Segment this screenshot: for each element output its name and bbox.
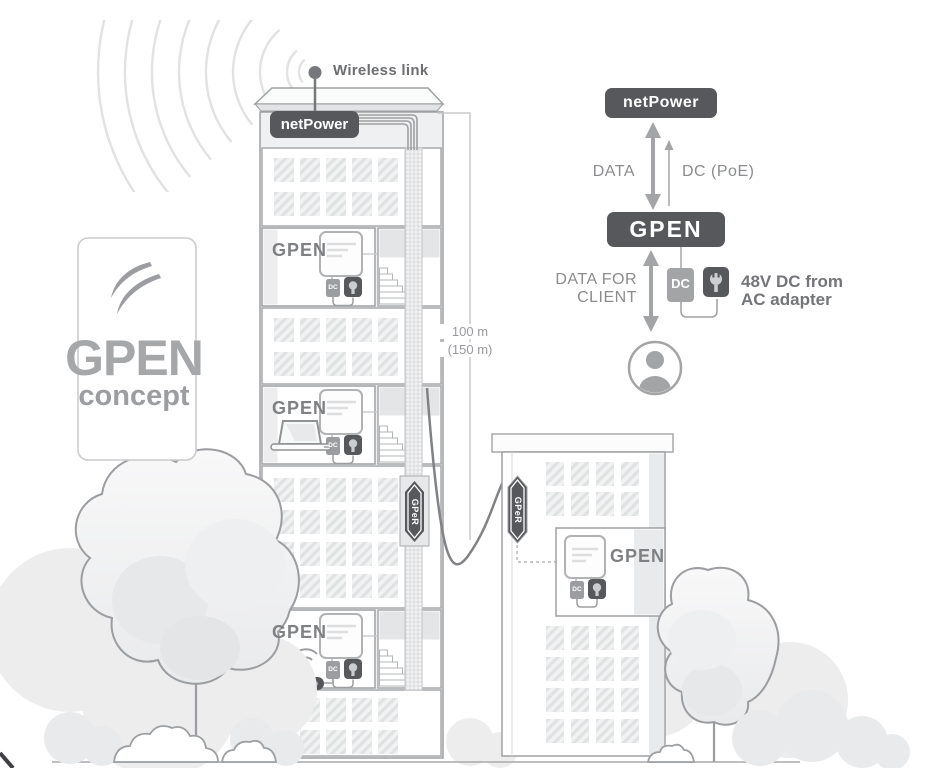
gper-label-building2: GPeR bbox=[512, 488, 524, 532]
dc-poe-label: DC (PoE) bbox=[682, 163, 754, 181]
person-icon bbox=[629, 342, 681, 404]
window-grid-row bbox=[274, 352, 398, 376]
cable-length-alt-label: (150 m) bbox=[438, 342, 502, 357]
logo-title: GPEN bbox=[34, 329, 234, 387]
gpen-concept-diagram: Wireless link netPower GPEN GPEN GPEN GP… bbox=[0, 0, 927, 768]
building-1-roof-eave bbox=[255, 104, 443, 111]
logo-subtitle: concept bbox=[34, 380, 234, 413]
power-plug-icon bbox=[703, 267, 729, 297]
building-2-roof bbox=[492, 434, 673, 452]
wireless-link-label: Wireless link bbox=[333, 62, 428, 79]
mini-dc-label-floor1: DC bbox=[326, 279, 340, 297]
schematic-dc-label: DC bbox=[667, 276, 694, 291]
gpen-floor3-label: GPEN bbox=[272, 622, 327, 643]
window-grid-row bbox=[274, 192, 398, 216]
cable-length-label: 100 m bbox=[438, 324, 502, 339]
client-double-arrow bbox=[643, 250, 659, 332]
data-label: DATA bbox=[547, 163, 635, 181]
building-1-roof bbox=[255, 88, 443, 104]
power-note-line1: 48V DC from bbox=[741, 272, 843, 292]
corner-artifact bbox=[0, 753, 13, 768]
schematic-gpen-badge: GPEN bbox=[607, 212, 725, 247]
gper-label-building1: GPeR bbox=[409, 490, 421, 534]
gpen-unit-room-building2 bbox=[556, 528, 665, 616]
window-grid-row bbox=[274, 158, 398, 182]
tower-netpower-badge: netPower bbox=[270, 111, 359, 138]
gpen-building2-label: GPEN bbox=[610, 546, 665, 567]
mini-dc-label-building2: DC bbox=[570, 581, 584, 599]
data-for-client-label-line2: CLIENT bbox=[519, 289, 637, 307]
poe-up-arrow bbox=[665, 140, 674, 206]
window-grid-row bbox=[274, 318, 398, 342]
data-for-client-label-line1: DATA FOR bbox=[519, 271, 637, 289]
mini-dc-label-floor2: DC bbox=[326, 437, 340, 455]
gpen-unit-device bbox=[565, 536, 605, 578]
cable-trunk bbox=[405, 148, 422, 690]
gpen-floor2-label: GPEN bbox=[272, 398, 327, 419]
schematic-netpower-badge: netPower bbox=[605, 88, 717, 118]
window-grid-row bbox=[274, 478, 398, 502]
mini-dc-label-floor3: DC bbox=[326, 661, 340, 679]
gpen-floor1-label: GPEN bbox=[272, 240, 327, 261]
data-double-arrow bbox=[645, 122, 661, 210]
window-grid-row bbox=[274, 510, 398, 534]
power-note-line2: AC adapter bbox=[741, 290, 832, 310]
